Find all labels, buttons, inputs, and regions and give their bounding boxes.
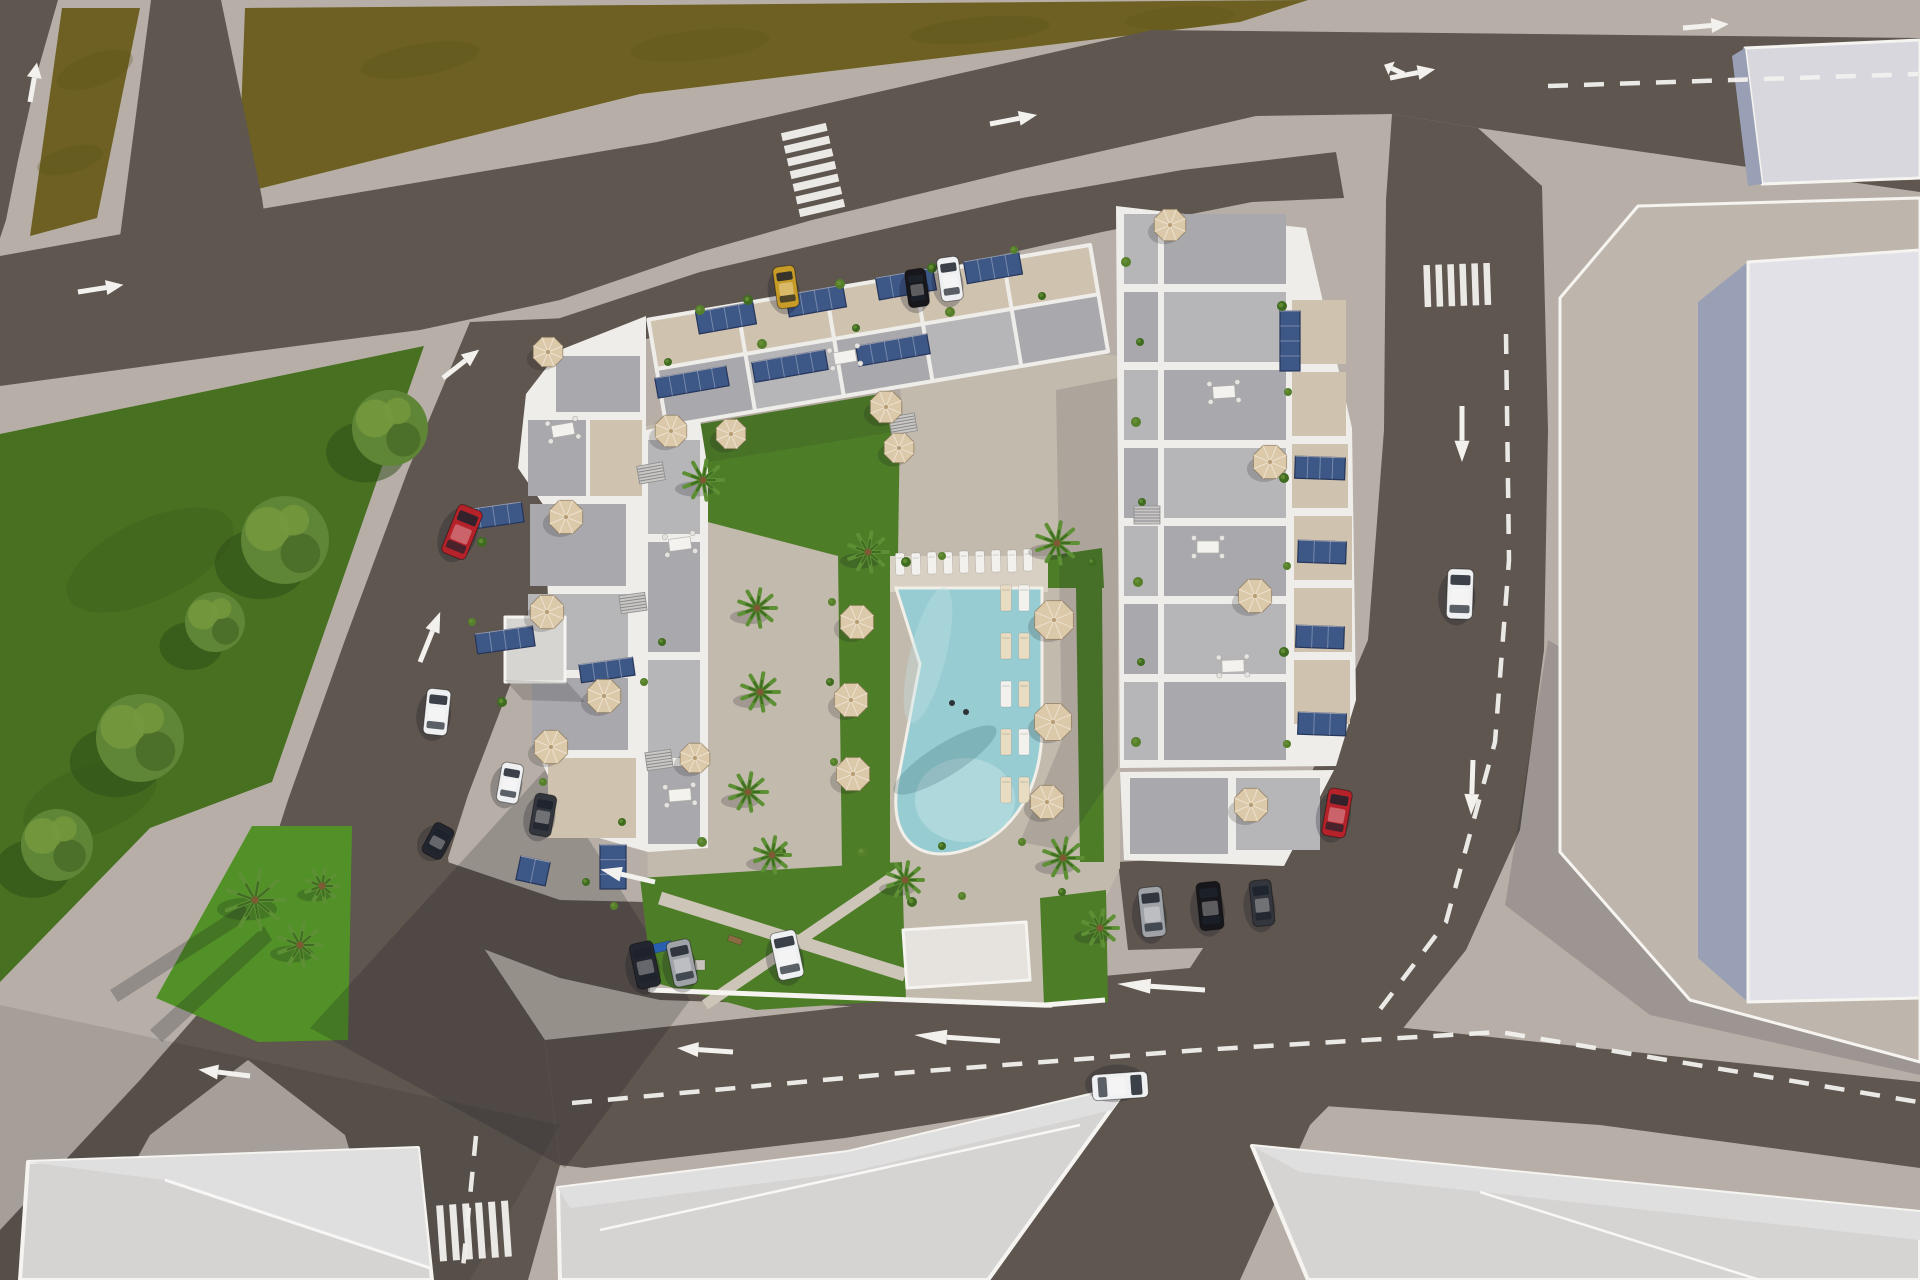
courtyard-lawn-southeast xyxy=(1040,890,1108,1006)
planter-bush xyxy=(945,307,955,317)
stairs xyxy=(1134,506,1160,524)
planter-bush xyxy=(539,778,547,786)
neighbor-building-east-upper xyxy=(1745,40,1920,184)
sun-lounger xyxy=(1001,777,1012,803)
planter-bush xyxy=(1058,888,1066,896)
planter-bush xyxy=(1121,257,1131,267)
planter-bush xyxy=(1136,338,1144,346)
block-east-wing xyxy=(1116,206,1356,768)
sun-lounger xyxy=(1019,681,1030,707)
planter-bush xyxy=(618,818,626,826)
planter-bush xyxy=(1279,647,1289,657)
solar-panel xyxy=(1295,456,1346,480)
community-structure xyxy=(903,922,1030,988)
planter-bush xyxy=(1018,838,1026,846)
planter-bush xyxy=(1133,577,1143,587)
planter-bush xyxy=(852,324,860,332)
solar-panel xyxy=(1296,625,1345,649)
planter-bush xyxy=(497,697,507,707)
aerial-site-render xyxy=(0,0,1920,1280)
sun-lounger xyxy=(1001,633,1012,659)
sun-lounger xyxy=(1001,729,1012,755)
sun-lounger xyxy=(1019,777,1030,803)
planter-bush xyxy=(695,305,705,315)
planter-bush xyxy=(857,847,867,857)
planter-bush xyxy=(938,552,946,560)
planter-bush xyxy=(1088,558,1096,566)
sun-lounger xyxy=(1001,585,1012,611)
planter-bush xyxy=(1038,292,1046,300)
sun-lounger xyxy=(1001,681,1012,707)
planter-bush xyxy=(468,618,476,626)
planter-bush xyxy=(1010,246,1018,254)
solar-panel xyxy=(1280,311,1300,371)
pool-swimmer xyxy=(949,700,955,706)
planter-bush xyxy=(658,638,666,646)
stairs xyxy=(619,592,647,613)
planter-bush xyxy=(826,678,834,686)
sun-lounger xyxy=(927,552,937,574)
planter-bush xyxy=(640,678,648,686)
planter-bush xyxy=(477,537,487,547)
planter-bush xyxy=(1277,301,1287,311)
neighbor-building-east-tall-side xyxy=(1698,262,1748,1002)
planter-bush xyxy=(664,358,672,366)
sun-lounger xyxy=(1019,729,1030,755)
planter-bush xyxy=(958,892,966,900)
sun-lounger xyxy=(991,550,1001,572)
planter-bush xyxy=(1283,740,1291,748)
planter-bush xyxy=(1283,562,1291,570)
planter-bush xyxy=(697,837,707,847)
stairs xyxy=(645,749,673,770)
pool-swimmer xyxy=(963,709,969,715)
planter-bush xyxy=(828,598,836,606)
planter-bush xyxy=(1137,658,1145,666)
sun-lounger xyxy=(911,553,921,575)
sun-lounger xyxy=(1019,633,1030,659)
planter-bush xyxy=(1138,498,1146,506)
neighbor-building-east-tall-roof xyxy=(1748,250,1920,1002)
planter-bush xyxy=(938,842,946,850)
planter-bush xyxy=(835,279,845,289)
sun-lounger xyxy=(975,551,985,573)
planter-bush xyxy=(901,557,911,567)
building-south-left xyxy=(20,1148,432,1280)
planter-bush xyxy=(1131,417,1141,427)
planter-bush xyxy=(610,902,618,910)
planter-bush xyxy=(830,758,838,766)
sun-lounger xyxy=(959,551,969,573)
solar-panel xyxy=(1298,540,1347,564)
planter-bush xyxy=(743,295,753,305)
planter-bush xyxy=(757,339,767,349)
solar-panel xyxy=(1298,712,1347,736)
planter-bush xyxy=(1284,388,1292,396)
planter-bush xyxy=(582,878,590,886)
sun-lounger xyxy=(1019,585,1030,611)
planter-bush xyxy=(1131,737,1141,747)
sun-lounger xyxy=(1007,550,1017,572)
